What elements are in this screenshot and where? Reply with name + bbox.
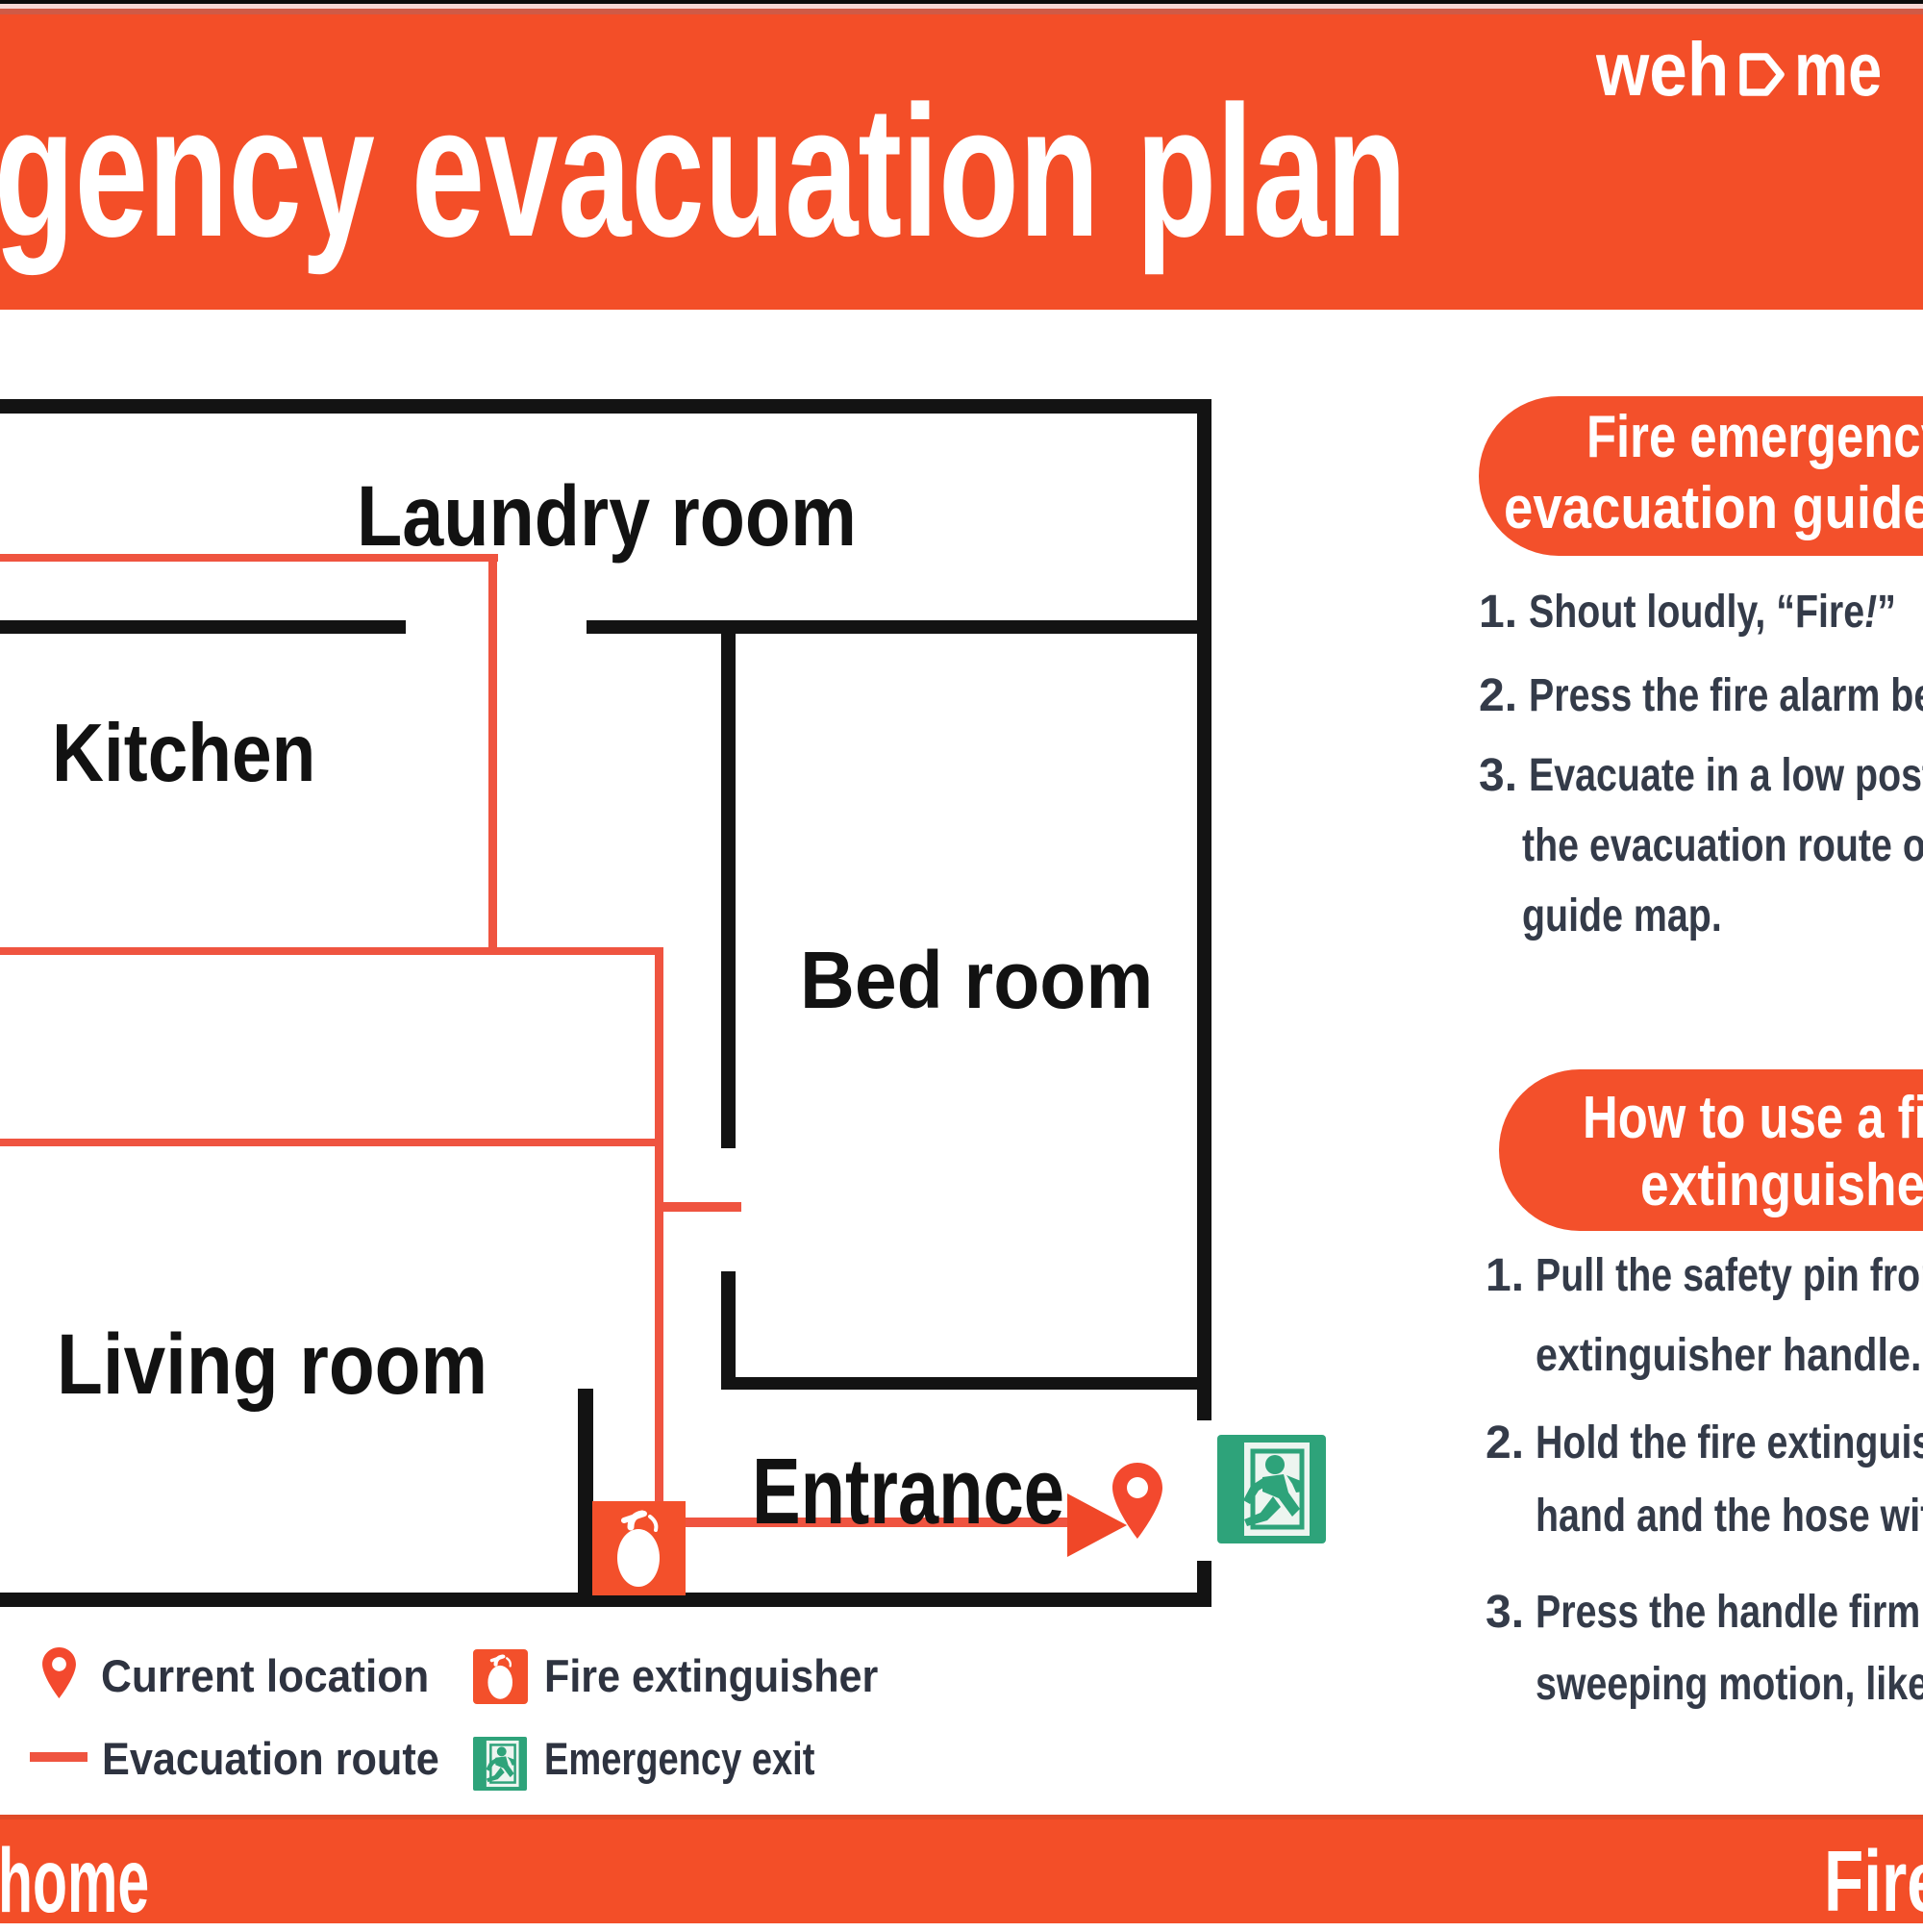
svg-text:weh: weh [1596,38,1729,106]
svg-text:me: me [1794,38,1882,106]
